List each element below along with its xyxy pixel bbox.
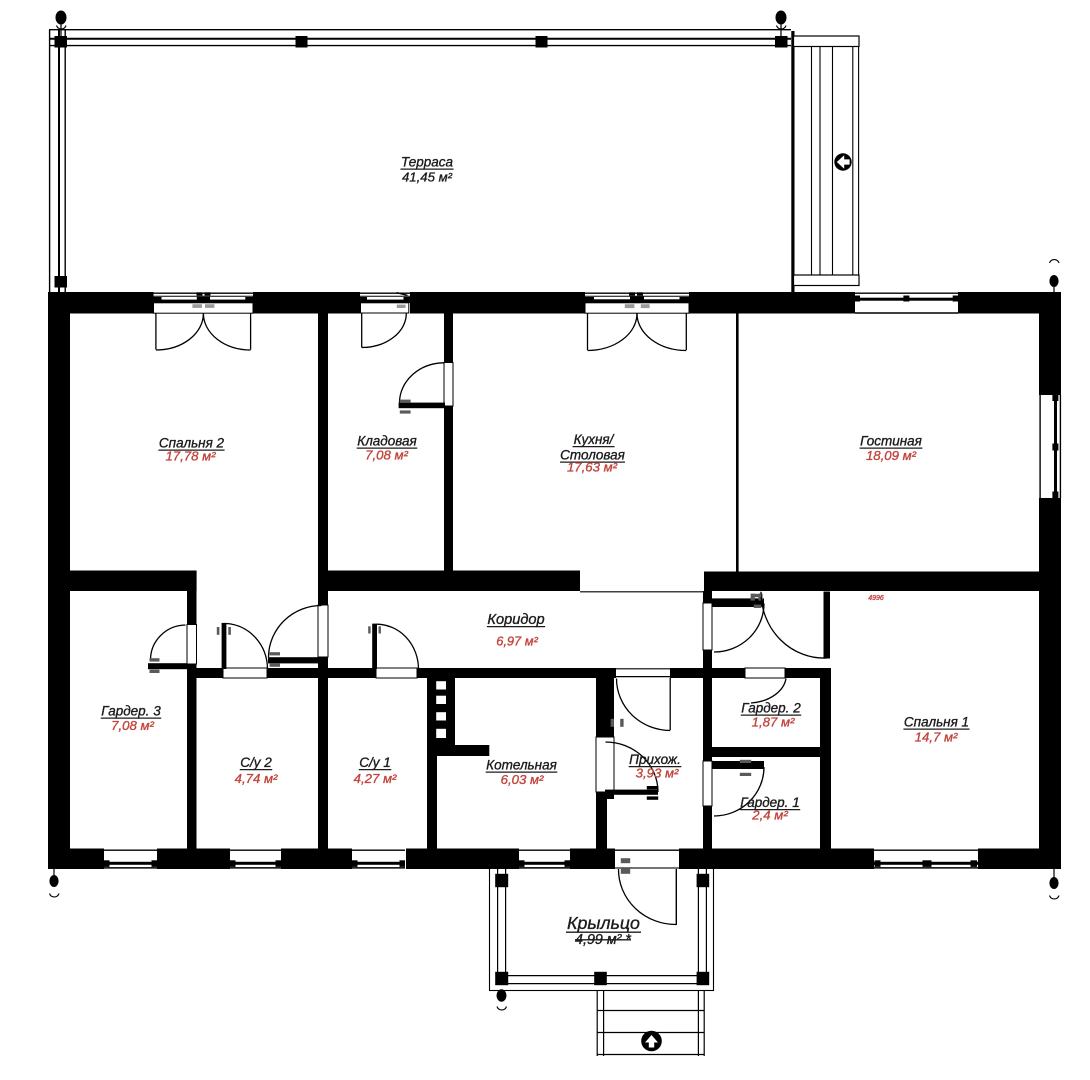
svg-text:4,74 м²: 4,74 м² <box>235 771 278 786</box>
svg-text:Кладовая: Кладовая <box>357 434 417 449</box>
svg-text:18,09 м²: 18,09 м² <box>866 448 917 463</box>
svg-text:4,27 м²: 4,27 м² <box>354 771 397 786</box>
svg-text:3,93 м²: 3,93 м² <box>636 766 679 781</box>
svg-text:С/у 1: С/у 1 <box>359 755 391 770</box>
svg-text:Терраса: Терраса <box>401 155 454 170</box>
svg-text:7,08 м²: 7,08 м² <box>111 718 154 733</box>
svg-text:Коридор: Коридор <box>487 612 544 628</box>
svg-text:41,45 м²: 41,45 м² <box>402 170 453 185</box>
svg-text:Спальня 1: Спальня 1 <box>904 715 969 730</box>
svg-text:7,08 м²: 7,08 м² <box>365 448 408 463</box>
svg-text:6,97 м²: 6,97 м² <box>496 634 538 649</box>
svg-text:Котельная: Котельная <box>486 758 557 773</box>
svg-text:Крыльцо: Крыльцо <box>567 913 640 933</box>
svg-text:1,87 м²: 1,87 м² <box>752 715 795 730</box>
svg-text:С/у 2: С/у 2 <box>240 755 272 770</box>
svg-text:6,03 м²: 6,03 м² <box>501 772 544 787</box>
svg-text:Гардер. 2: Гардер. 2 <box>741 701 801 716</box>
svg-text:2,4 м²: 2,4 м² <box>751 808 788 823</box>
svg-text:Гардер. 3: Гардер. 3 <box>101 704 161 719</box>
svg-text:4996: 4996 <box>868 595 884 602</box>
svg-text:Гостиная: Гостиная <box>860 434 922 449</box>
svg-text:17,78 м²: 17,78 м² <box>165 449 216 464</box>
svg-text:14,7 м²: 14,7 м² <box>915 730 958 745</box>
svg-text:17,63 м²: 17,63 м² <box>567 460 618 475</box>
svg-text:Кухня/: Кухня/ <box>574 432 615 447</box>
